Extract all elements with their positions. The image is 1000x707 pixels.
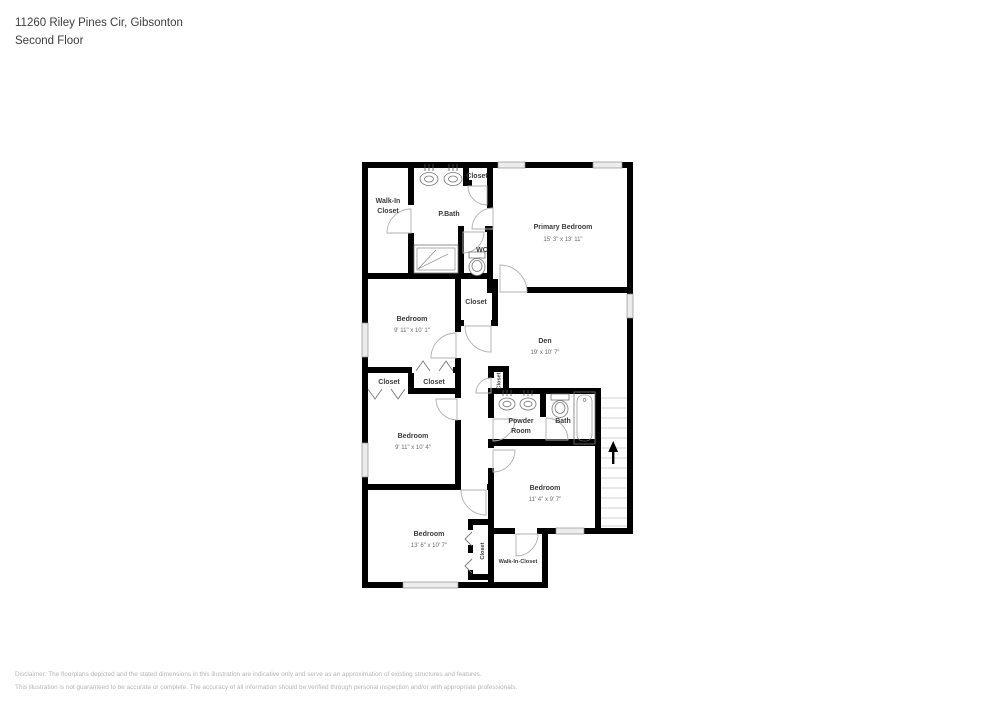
room-label-closet-left-b: Closet <box>423 379 445 386</box>
toilet-icon <box>469 252 485 276</box>
floor-plan-svg: Walk-In Closet P.Bath Closet WC Primary … <box>350 150 650 600</box>
plan-header: 11260 Riley Pines Cir, Gibsonton Second … <box>15 14 183 50</box>
room-dims-bedroom-se: 11' 4" x 9' 7" <box>529 497 561 503</box>
room-label-walk-in-closet-top: Walk-In <box>376 198 401 205</box>
address-title: 11260 Riley Pines Cir, Gibsonton <box>15 14 183 32</box>
room-label-closet-den: Closet <box>497 372 503 389</box>
room-label-bedroom-nw: Bedroom <box>397 316 428 323</box>
room-label-bedroom-sw: Bedroom <box>414 531 445 538</box>
shower-icon <box>414 245 458 273</box>
room-label-closet-mid: Closet <box>465 299 487 306</box>
floor-title: Second Floor <box>15 32 183 50</box>
room-label-bath: Bath <box>555 418 571 425</box>
room-label-closet-bottom: Closet <box>480 542 486 559</box>
stairs-up-arrow-icon <box>608 441 618 464</box>
room-label-walk-in-closet-bottom: Walk-In-Closet <box>499 559 538 565</box>
floorplan-page: { "header": { "address": "11260 Riley Pi… <box>0 0 1000 707</box>
toilet-icon <box>551 394 569 418</box>
room-dims-bedroom-nw: 9' 11" x 10' 1" <box>394 328 430 334</box>
room-dims-den: 19' x 10' 7" <box>530 350 559 356</box>
staircase <box>601 398 627 526</box>
room-label-den: Den <box>538 338 551 345</box>
room-label-bedroom-w: Bedroom <box>398 433 429 440</box>
room-dims-primary-bedroom: 15' 3" x 13' 11" <box>543 237 582 243</box>
room-label-bedroom-se: Bedroom <box>530 485 561 492</box>
room-label-primary-bedroom: Primary Bedroom <box>534 224 593 231</box>
fixtures <box>414 164 595 444</box>
disclaimer-line-2: This illustration is not guaranteed to b… <box>15 681 517 694</box>
room-label-closet-top: Closet <box>466 173 488 180</box>
room-label-p-bath: P.Bath <box>438 211 459 218</box>
disclaimer: Disclaimer: The floorplans depicted and … <box>15 668 517 694</box>
room-label-powder-room2: Room <box>511 428 531 435</box>
room-dims-bedroom-sw: 13' 6" x 10' 7" <box>411 543 447 549</box>
bathtub-icon <box>574 392 595 444</box>
room-label-wc: WC <box>476 247 488 254</box>
room-label-closet-left-a: Closet <box>378 379 400 386</box>
disclaimer-line-1: Disclaimer: The floorplans depicted and … <box>15 668 517 681</box>
room-label-powder-room: Powder <box>508 418 534 425</box>
room-dims-bedroom-w: 9' 11" x 10' 4" <box>395 445 431 451</box>
room-label-walk-in-closet-top2: Closet <box>377 208 399 215</box>
